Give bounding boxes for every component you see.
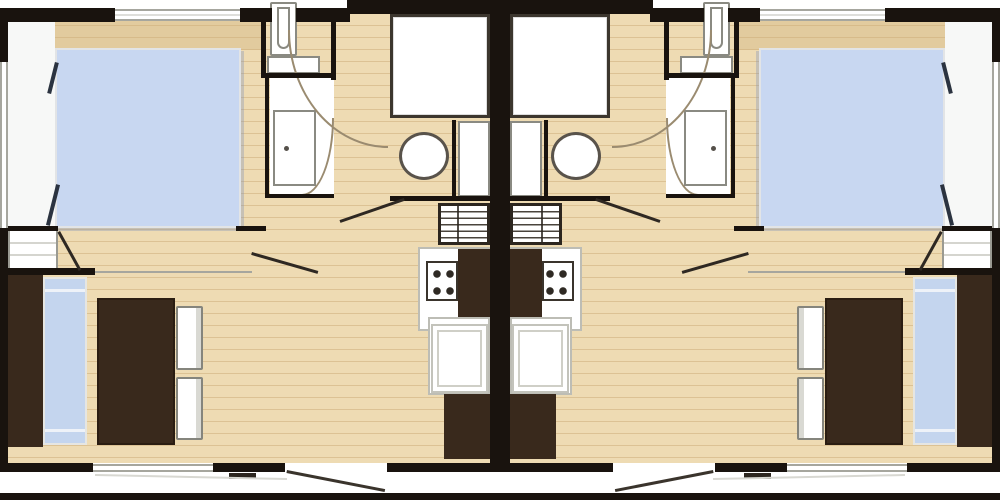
shower-partition xyxy=(664,14,669,80)
chair xyxy=(797,306,824,370)
double-bed xyxy=(55,48,241,228)
window xyxy=(115,9,240,21)
side-wall xyxy=(992,226,1000,472)
kitchen-block-dark xyxy=(444,394,490,459)
kitchen-worktop-dark xyxy=(458,249,490,317)
living-partition-line xyxy=(748,271,905,273)
bottom-wall xyxy=(715,463,787,472)
bench-sofa-back xyxy=(5,274,43,447)
top-wall xyxy=(240,8,272,22)
chair xyxy=(176,377,203,440)
stove xyxy=(426,261,458,301)
bedroom-partition xyxy=(734,226,764,231)
wc-partition xyxy=(544,120,548,198)
top-wall xyxy=(650,8,704,22)
appliance-outline-inner xyxy=(518,330,563,387)
chair xyxy=(797,377,824,440)
bathroom-partition xyxy=(666,194,735,198)
toilet-bowl xyxy=(551,132,601,180)
top-wall-center xyxy=(347,0,500,14)
washbasin-drain xyxy=(711,146,716,151)
bench-sofa-cushion xyxy=(43,277,87,445)
top-wall-center xyxy=(500,0,653,14)
kitchen-worktop-dark xyxy=(510,249,542,317)
closet-partition xyxy=(261,14,266,78)
toilet-tank xyxy=(510,121,542,197)
porch-edge-line xyxy=(95,474,287,480)
central-divider-wall xyxy=(500,14,510,464)
entrance-door-swing xyxy=(286,470,385,492)
shelf-unit xyxy=(438,203,490,245)
water-heater-flue xyxy=(710,7,723,49)
top-wall xyxy=(885,8,1000,22)
bottom-wall xyxy=(500,463,613,472)
porch-edge-line xyxy=(713,474,905,480)
central-divider-wall xyxy=(490,14,500,464)
bottom-wall xyxy=(0,463,93,472)
window-bay-strip xyxy=(945,22,992,228)
bedroom-partition xyxy=(236,226,266,231)
closet-partition xyxy=(669,73,739,78)
top-wall xyxy=(0,8,115,22)
dresser xyxy=(8,228,58,270)
toilet-bowl xyxy=(399,132,449,180)
unit-left xyxy=(0,0,500,500)
window xyxy=(0,62,8,228)
bench-sofa-cushion xyxy=(913,277,957,445)
floor-plan xyxy=(0,0,1000,500)
shelf-unit xyxy=(510,203,562,245)
bedroom-partition xyxy=(0,226,58,231)
bench-sofa-back xyxy=(957,274,995,447)
entrance-door-swing xyxy=(615,470,714,492)
dining-table xyxy=(97,298,175,445)
stove xyxy=(542,261,574,301)
side-wall xyxy=(992,8,1000,64)
closet-partition xyxy=(261,73,331,78)
bottom-wall xyxy=(907,463,1000,472)
bathroom-partition xyxy=(265,194,334,198)
shower xyxy=(390,14,490,118)
kitchen-block-dark xyxy=(510,394,556,459)
bottom-wall xyxy=(387,463,500,472)
bathroom-partition xyxy=(265,78,269,198)
window xyxy=(760,9,885,21)
window xyxy=(93,464,213,472)
side-wall xyxy=(0,8,8,64)
living-partition-line xyxy=(95,271,252,273)
bathroom-partition xyxy=(731,78,735,198)
chair xyxy=(176,306,203,370)
top-wall xyxy=(296,8,350,22)
top-wall xyxy=(728,8,760,22)
window xyxy=(992,62,1000,228)
shower xyxy=(510,14,610,118)
double-bed xyxy=(759,48,945,228)
closet-partition xyxy=(734,14,739,78)
washbasin-drain xyxy=(284,146,289,151)
dining-table xyxy=(825,298,903,445)
unit-right xyxy=(500,0,1000,500)
window-bay-strip xyxy=(8,22,55,228)
bottom-wall xyxy=(213,463,285,472)
appliance-outline-inner xyxy=(437,330,482,387)
toilet-tank xyxy=(458,121,490,197)
window xyxy=(787,464,907,472)
dresser xyxy=(942,228,992,270)
wc-partition xyxy=(452,120,456,198)
wc-partition xyxy=(390,196,490,201)
shower-partition xyxy=(331,14,336,80)
side-wall xyxy=(0,226,8,472)
